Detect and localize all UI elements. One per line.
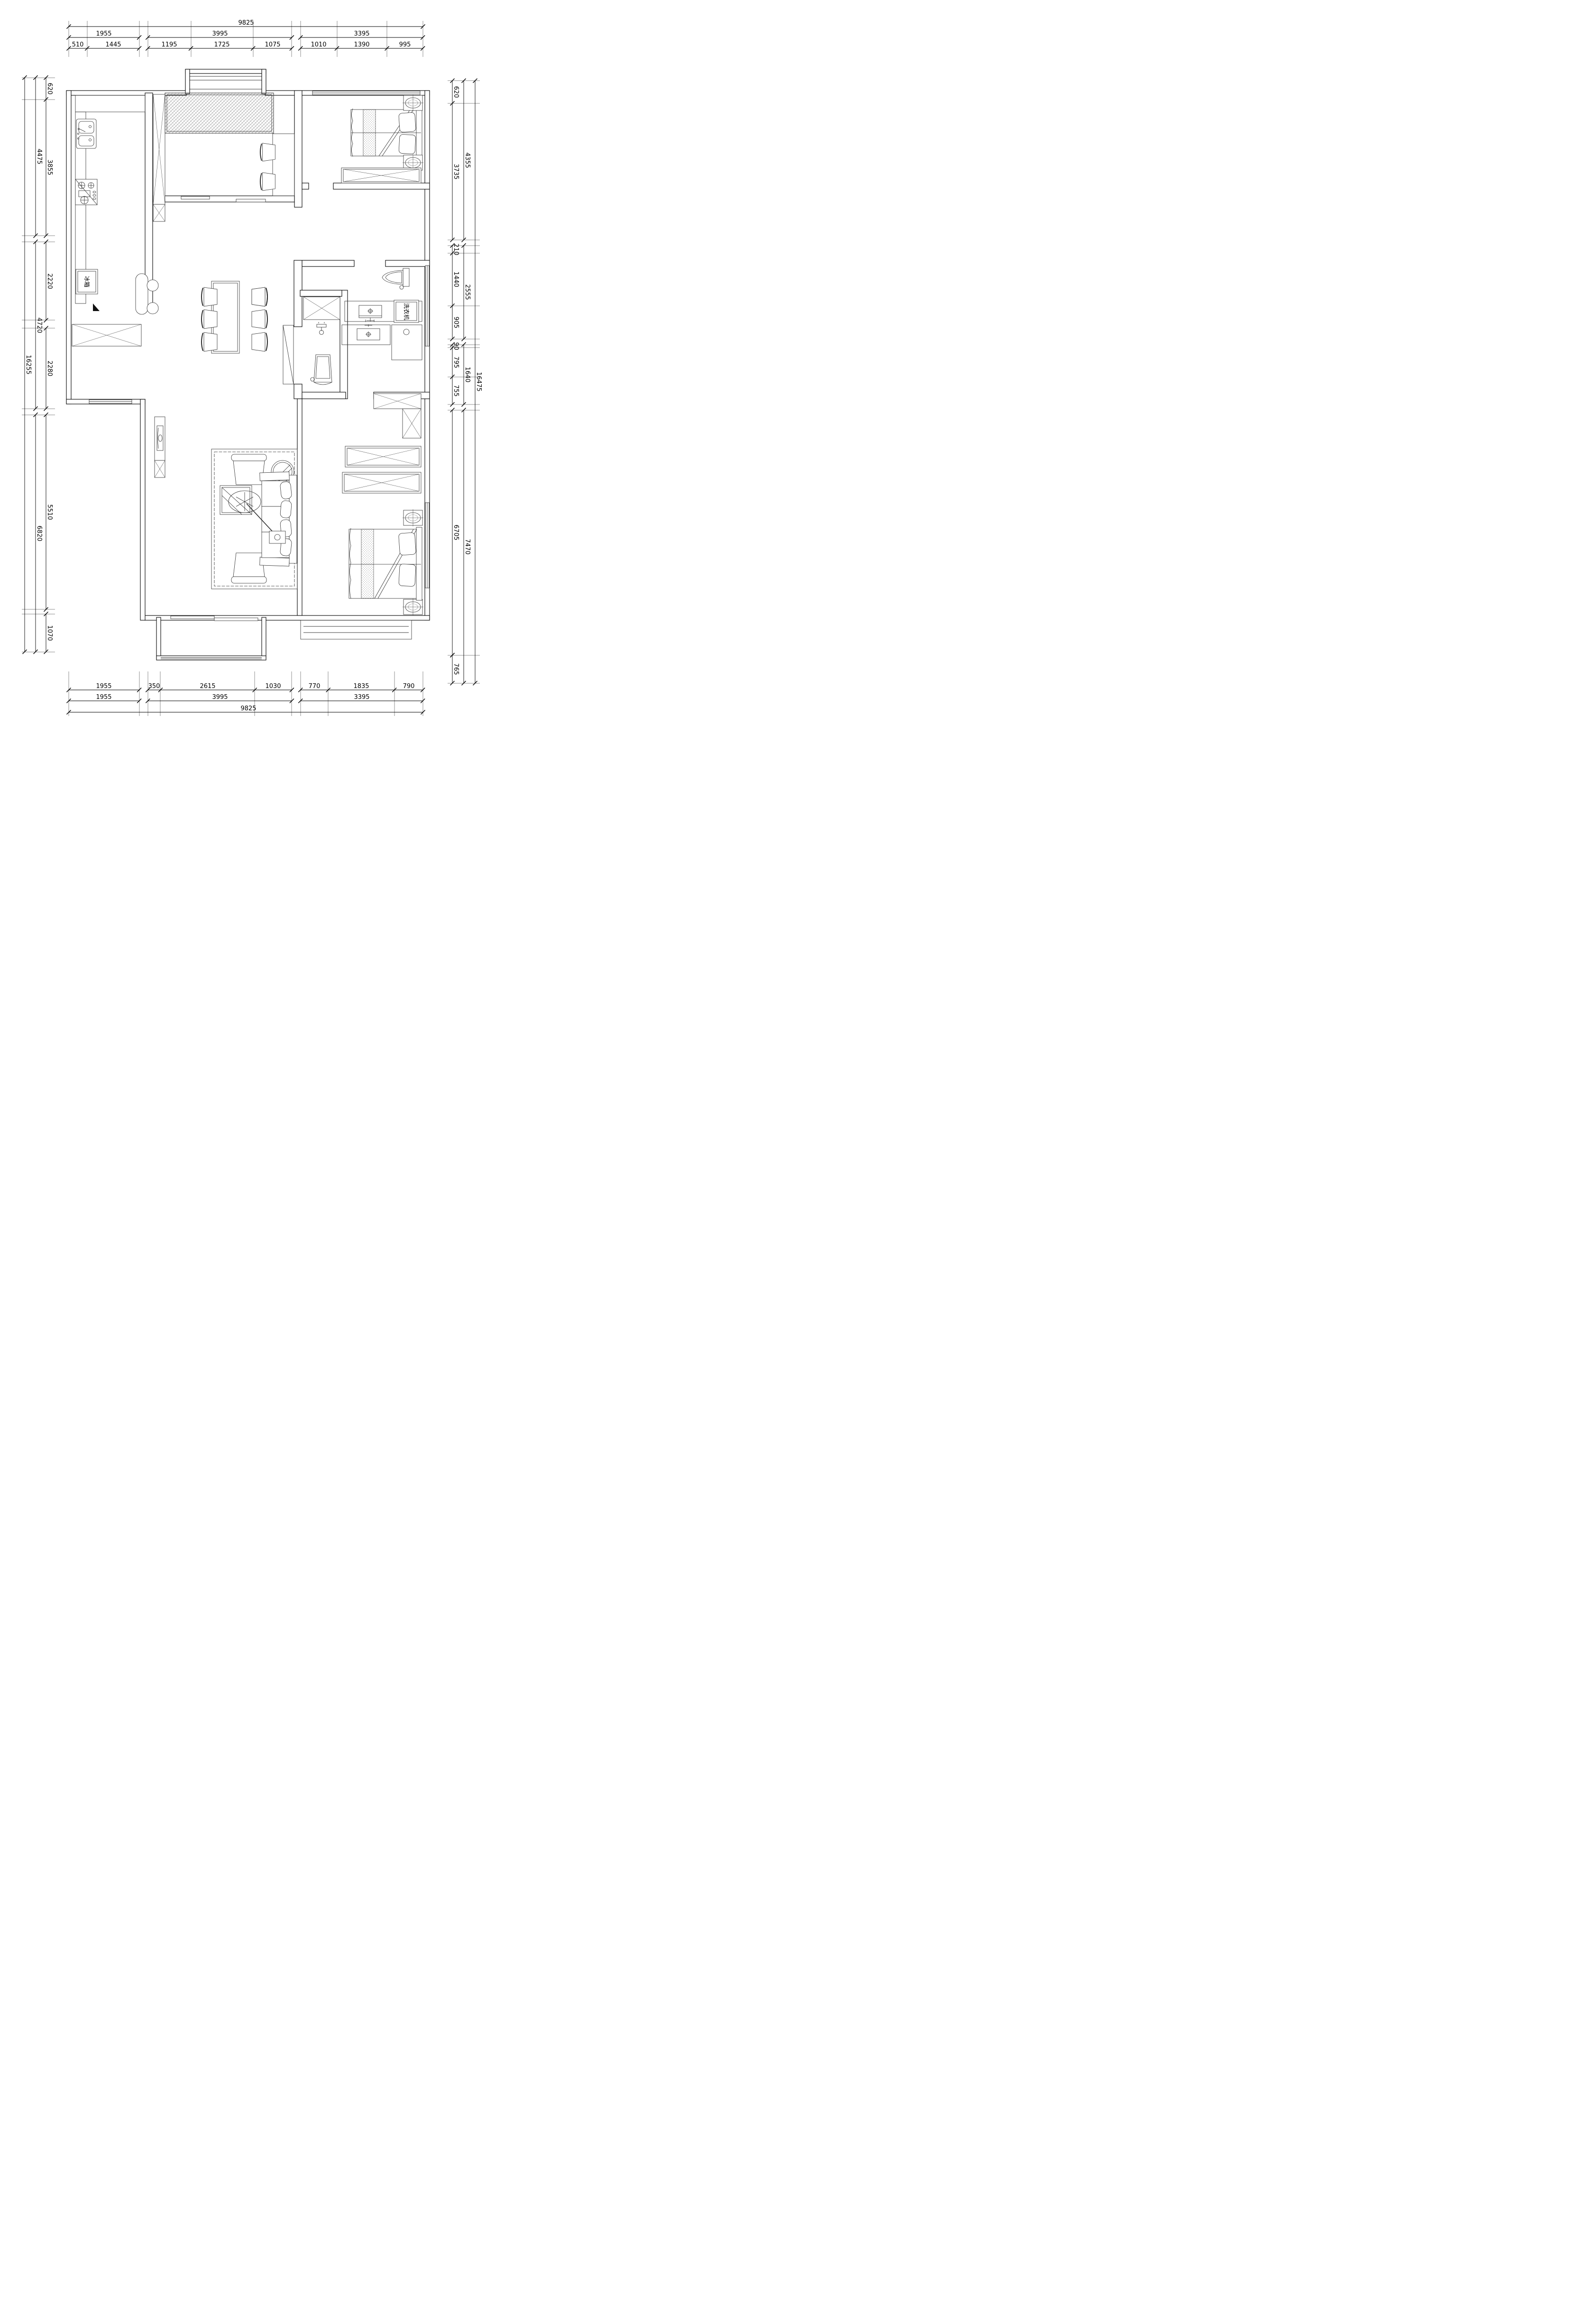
tatami-platform <box>165 93 274 133</box>
bed-1 <box>351 108 422 157</box>
dim-label: 6820 <box>36 525 43 541</box>
fridge: 冰箱 <box>76 269 100 311</box>
dim-label: 1075 <box>265 41 280 48</box>
stove <box>75 179 97 205</box>
dim-label: 1955 <box>96 30 111 37</box>
dim-label: 620 <box>452 86 459 98</box>
nightstand-lamp <box>403 509 423 526</box>
dim-label: 9825 <box>240 705 256 712</box>
dim-label: 1725 <box>214 41 229 48</box>
dim-label: 1955 <box>96 683 111 690</box>
bar-table <box>136 274 158 314</box>
bathroom: 洗衣机 <box>342 268 422 360</box>
wardrobe-2a <box>374 394 421 409</box>
dim-label: 16475 <box>475 372 482 391</box>
dining-chair <box>202 287 217 306</box>
wardrobe-2d <box>342 472 421 493</box>
shower-chair <box>311 355 332 385</box>
desk-chair <box>260 173 275 191</box>
window-left-niche <box>89 400 132 404</box>
washing-machine: 洗衣机 <box>394 300 419 322</box>
living-room <box>155 417 297 589</box>
tv-unit <box>155 417 165 478</box>
dim-label: 3995 <box>212 30 228 37</box>
door-shower[interactable] <box>283 325 294 384</box>
wardrobe-2c <box>345 446 421 467</box>
dim-label: 790 <box>403 683 415 690</box>
entry-cabinet <box>72 324 141 346</box>
dim-label: 905 <box>452 317 459 329</box>
desk-chair <box>260 143 275 161</box>
vanity-2 <box>342 324 390 345</box>
dim-label: 510 <box>72 41 84 48</box>
dim-label: 1835 <box>353 683 369 690</box>
balcony-sliding-door[interactable] <box>171 616 214 619</box>
flue-cabinet <box>153 94 165 221</box>
dim-label: 2220 <box>46 273 53 289</box>
kitchen-counter-top <box>75 95 145 112</box>
window-bedroom1-top <box>312 91 420 95</box>
bay-window-bottom-right <box>301 620 412 639</box>
dim-label: 1440 <box>452 271 459 287</box>
dim-label: 4720 <box>36 317 43 333</box>
bed-2 <box>349 527 422 600</box>
nightstand-lamp <box>403 598 423 615</box>
coffee-table <box>220 486 252 514</box>
dim-label: 1640 <box>464 367 471 382</box>
nightstand-lamp <box>403 94 423 111</box>
dim-label: 3855 <box>46 159 53 175</box>
dim-label: 6705 <box>452 524 459 540</box>
dim-label: 1070 <box>46 625 53 641</box>
toilet <box>382 268 409 289</box>
dim-label: 795 <box>452 357 459 368</box>
desk <box>273 134 294 196</box>
dim-label: 4475 <box>36 148 43 164</box>
dim-label: 1390 <box>354 41 369 48</box>
dim-label: 3395 <box>354 694 369 701</box>
window-right-bedroom2 <box>425 503 429 588</box>
duct-cabinet <box>303 297 340 320</box>
bedroom-2 <box>342 394 423 615</box>
dim-label: 350 <box>148 683 160 690</box>
dim-label: 1010 <box>311 41 326 48</box>
dim-label: 7470 <box>464 539 471 554</box>
dim-label: 210 <box>452 244 459 256</box>
floor-plan-page: 冰箱 <box>0 0 512 740</box>
kitchen-sink <box>76 119 96 148</box>
dim-label: 1030 <box>265 683 281 690</box>
dining-chair <box>202 310 217 329</box>
dining-chair <box>252 310 267 329</box>
bedroom-1 <box>341 94 423 183</box>
dim-label: 2615 <box>200 683 215 690</box>
window-right-bath <box>425 266 429 346</box>
dining-chair <box>202 332 217 351</box>
dining-area <box>202 281 267 353</box>
dim-label: 2280 <box>46 360 53 376</box>
dim-label: 620 <box>46 83 53 95</box>
dim-label: 90 <box>452 342 459 350</box>
dim-label: 4355 <box>464 152 471 168</box>
dim-label: 1195 <box>161 41 177 48</box>
wardrobe-1 <box>341 168 421 183</box>
dim-label: 995 <box>399 41 411 48</box>
sofa <box>260 472 297 566</box>
dim-label: 9825 <box>238 19 254 27</box>
dim-label: 1445 <box>105 41 121 48</box>
dim-label: 755 <box>452 385 459 397</box>
dim-label: 3395 <box>354 30 369 37</box>
dim-label: 3735 <box>452 164 459 179</box>
wardrobe-2b <box>403 409 421 438</box>
floor-plan-svg: 冰箱 <box>0 0 512 740</box>
balcony-bottom-left <box>156 616 266 660</box>
dim-label: 5510 <box>46 504 53 520</box>
dim-label: 765 <box>452 663 459 675</box>
dining-chair <box>252 287 267 306</box>
dim-label: 770 <box>309 683 321 690</box>
fridge-label: 冰箱 <box>83 276 91 287</box>
shower-room <box>303 297 340 385</box>
shower-faucet <box>317 322 326 335</box>
shower-tray <box>392 325 422 360</box>
dim-label: 1955 <box>96 694 111 701</box>
washer-label: 洗衣机 <box>403 303 410 320</box>
dining-chair <box>252 332 267 351</box>
dim-label: 16255 <box>25 355 32 374</box>
dim-label: 2555 <box>464 284 471 300</box>
dim-label: 3995 <box>212 694 228 701</box>
bay-window-top <box>185 69 266 94</box>
